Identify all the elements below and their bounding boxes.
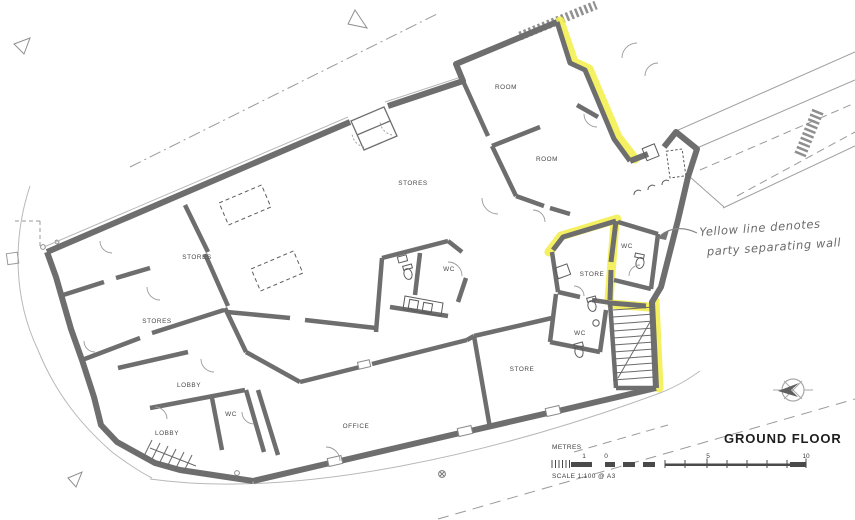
duct-dashed-box [666,149,686,178]
toilet-icon [635,253,645,269]
room-label-store-lower: STORE [510,366,535,373]
scale-units-label: METRES [552,444,582,451]
room-label-store-mid: STORE [580,271,605,278]
room-label-room-lower: ROOM [536,156,558,163]
door-arcs [84,43,658,461]
neighbor-building-lines [44,5,855,247]
window-symbols [327,360,560,467]
room-label-stores-main: STORES [398,180,427,187]
room-label-wc-mid-right: WC [574,330,586,337]
toilet-icon [574,342,585,358]
boundary-dash-bottom-long [438,399,855,519]
rooflight-dashed-box [251,251,303,291]
drawing-title: GROUND FLOOR [724,431,842,446]
survey-triangle-icon [68,472,82,487]
rooflight-dashed-box [219,185,271,225]
survey-triangle-icon [348,10,367,28]
room-label-wc-upper-right: WC [621,243,633,250]
toilet-icon [403,264,414,280]
room-label-lobby-lower: LOBBY [155,430,179,437]
survey-square-marker [6,252,18,264]
annotation-line1: Yellow line denotes [699,217,821,239]
annotation: Yellow line denotes party separating wal… [699,215,842,259]
scale-bar-ticks [665,459,806,469]
room-label-lobby-upper: LOBBY [177,382,201,389]
north-arrow-icon [773,379,813,401]
neighbor-hatched-wall [800,111,818,155]
annotation-line2: party separating wall [705,235,841,258]
floor-plan-canvas: STORES STORES STORES ROOM ROOM WC WC WC … [0,0,855,520]
urinal-icons [634,180,669,195]
scale-bar-hatch [552,460,570,468]
room-label-stores-mid: STORES [182,254,211,261]
basin-icon [397,255,407,263]
survey-triangle-icon [14,38,30,54]
vestibule [351,107,397,150]
scale-tick-1: 1 [582,453,586,460]
basin-icon [593,320,599,326]
toilet-icon [587,296,598,312]
scale-note: SCALE 1:100 @ A3 [552,473,616,480]
room-label-wc-lobby: WC [225,411,237,418]
survey-crossed-circle-icon [439,471,446,478]
room-labels: STORES STORES STORES ROOM ROOM WC WC WC … [142,84,633,437]
survey-point-icon [235,471,240,476]
stair-treads-right [613,307,654,380]
scale-bar-blocks [571,462,806,467]
room-label-stores-lower: STORES [142,318,171,325]
room-label-office: OFFICE [343,423,370,430]
room-label-wc-center: WC [443,266,455,273]
scale-tick-0: 0 [604,453,608,460]
boundary-dash-bottom-short [574,425,668,452]
room-label-room-upper: ROOM [495,84,517,91]
